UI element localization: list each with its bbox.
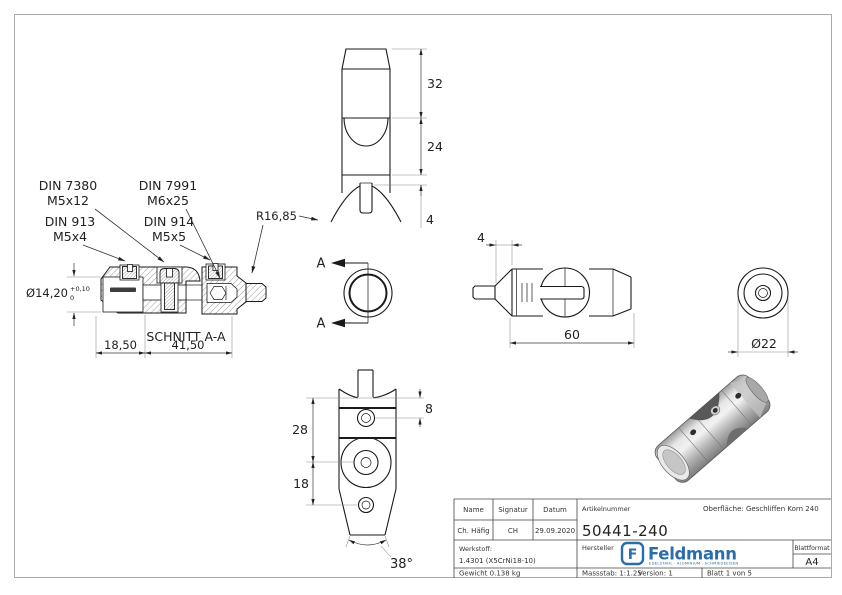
logo-tagline: EDELSTAHL · ALUMINIUM · SCHMIEDEEISEN — [649, 561, 738, 566]
tb-blattformat-label: Blattformat — [794, 545, 830, 552]
dim-4150: 41,50 — [172, 338, 205, 352]
tb-name-value: Ch. Häfig — [457, 527, 489, 535]
dim-r1685: R16,85 — [256, 209, 297, 223]
dim-60: 60 — [564, 327, 580, 342]
section-arrow-bottom — [331, 319, 345, 327]
tb-signatur-value: CH — [508, 527, 518, 535]
callout-din7380-size: M5x12 — [47, 193, 89, 208]
tb-blatt: Blatt 1 von 5 — [707, 570, 752, 578]
dim-32: 32 — [427, 76, 443, 91]
dim-1850: 18,50 — [104, 338, 137, 352]
view-end-circle: Ø22 — [728, 268, 798, 357]
tb-version: Version: 1 — [638, 570, 673, 578]
dim-dia22: Ø22 — [751, 336, 777, 351]
section-letter-bottom: A — [317, 317, 326, 332]
dim-dia1420: Ø14,20 — [26, 286, 68, 300]
dim-tol-plus: +0,10 — [70, 285, 90, 293]
tb-massstab: Massstab: 1:1.25 — [582, 570, 642, 578]
view-side: 4 60 — [473, 230, 634, 348]
view-cutting-plane-circle: A A — [317, 257, 392, 332]
dim-38deg: 38° — [390, 557, 413, 572]
tb-signatur-label: Signatur — [498, 506, 528, 514]
tb-werkstoff-label: Werkstoff: — [459, 545, 492, 553]
tb-datum-label: Datum — [543, 506, 567, 514]
tb-hersteller-label: Hersteller — [582, 544, 614, 552]
callout-din7991-size: M6x25 — [147, 193, 189, 208]
part-marking — [110, 288, 136, 293]
callout-din914: DIN 914 — [144, 214, 195, 229]
radius-callout: R16,85 — [252, 209, 318, 273]
tb-artikelnummer-value: 50441-240 — [582, 522, 668, 540]
dim-4-top: 4 — [426, 212, 434, 227]
view-front-elevation: 32 24 4 — [331, 49, 443, 228]
tb-oberflaeche: Oberfläche: Geschliffen Korn 240 — [703, 505, 819, 513]
dim-8: 8 — [425, 401, 433, 416]
dim-4-side: 4 — [477, 230, 485, 245]
tb-gewicht: Gewicht 0.138 kg — [459, 570, 520, 578]
technical-drawing-sheet: 32 24 4 R16,85 — [0, 0, 842, 595]
tb-artikelnummer-label: Artikelnummer — [582, 505, 631, 513]
dim-18: 18 — [293, 476, 309, 491]
title-block: Name Signatur Datum Ch. Häfig CH 29.09.2… — [454, 499, 831, 578]
logo-letter: F — [628, 547, 638, 563]
view-bottom-front: 28 18 8 38° — [292, 370, 433, 572]
dim-28: 28 — [292, 422, 308, 437]
section-letter-top: A — [317, 257, 326, 272]
din-callouts: DIN 7380 M5x12 DIN 7991 M6x25 DIN 913 M5… — [39, 178, 220, 278]
tb-name-label: Name — [463, 506, 484, 514]
dim-24: 24 — [427, 139, 443, 154]
callout-din914-size: M5x5 — [152, 229, 186, 244]
view-section-a-a: SCHNITT A-A Ø14,20 +0,10 0 18,50 41,50 — [26, 263, 266, 358]
tb-datum-value: 29.09.2020 — [535, 527, 575, 535]
view-isometric — [650, 369, 776, 487]
callout-din7380: DIN 7380 — [39, 178, 97, 193]
tb-werkstoff-value: 1.4301 (X5CrNi18-10) — [459, 557, 536, 565]
section-arrow-top — [331, 259, 345, 267]
callout-din7991: DIN 7991 — [139, 178, 197, 193]
feldmann-logo: F Feldmann EDELSTAHL · ALUMINIUM · SCHMI… — [622, 543, 738, 566]
tb-blattformat-value: A4 — [805, 557, 818, 568]
dim-tol-zero: 0 — [70, 294, 74, 302]
callout-din913-size: M5x4 — [53, 229, 87, 244]
callout-din913: DIN 913 — [45, 214, 96, 229]
